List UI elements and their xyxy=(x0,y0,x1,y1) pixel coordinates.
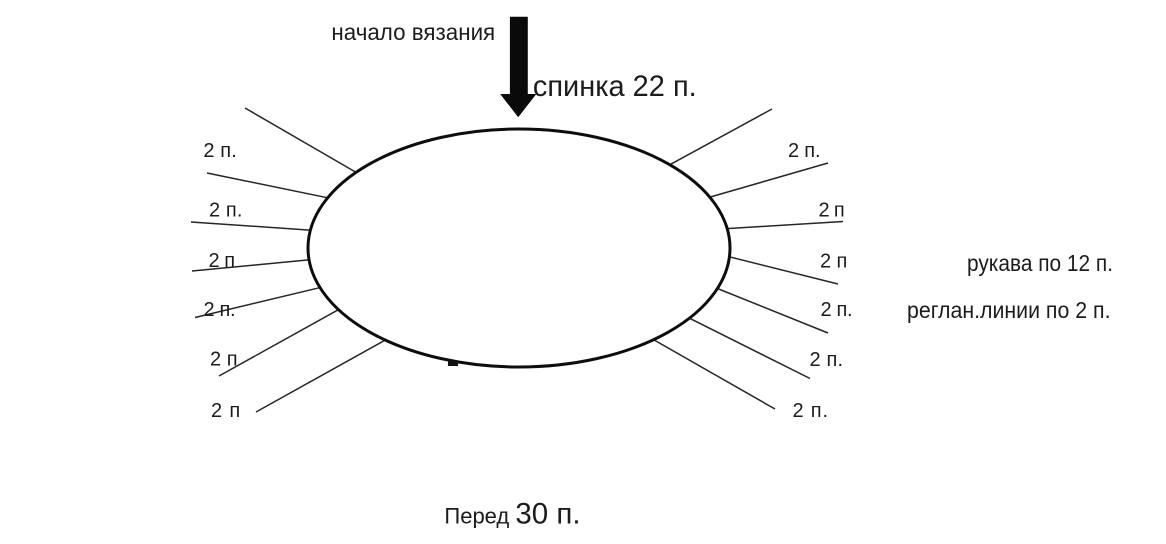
svg-text:2 п: 2 п xyxy=(211,400,240,422)
svg-text:2 п.: 2 п. xyxy=(788,140,821,162)
svg-text:спинка 22 п.: спинка 22 п. xyxy=(533,70,697,103)
svg-text:реглан.линии по 2 п.: реглан.линии по 2 п. xyxy=(907,297,1111,323)
svg-text:начало вязания: начало вязания xyxy=(331,19,495,45)
svg-text:рукава по 12 п.: рукава по 12 п. xyxy=(967,250,1113,276)
svg-text:2 п.: 2 п. xyxy=(810,349,844,371)
svg-text:2 п: 2 п xyxy=(210,349,238,371)
svg-text:2 п.: 2 п. xyxy=(209,200,242,222)
svg-text:2 п.: 2 п. xyxy=(821,299,853,321)
svg-text:2 п: 2 п xyxy=(209,250,236,272)
svg-text:2 п: 2 п xyxy=(819,200,845,222)
svg-text:2 п.: 2 п. xyxy=(204,299,236,321)
svg-text:2 п: 2 п xyxy=(820,251,847,273)
svg-text:2 п.: 2 п. xyxy=(793,400,829,422)
svg-text:2 п.: 2 п. xyxy=(203,140,236,162)
